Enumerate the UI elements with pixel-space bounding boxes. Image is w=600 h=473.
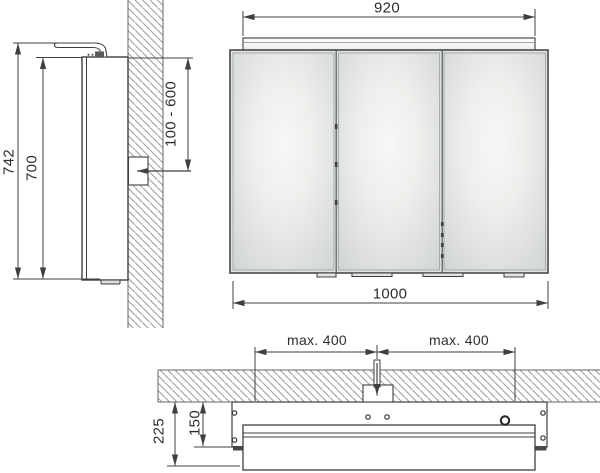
side-view-cabinet-body (82, 57, 128, 284)
mirror-door-1 (233, 53, 334, 270)
dim-label-side-body-height: 700 (25, 155, 40, 181)
front-view-light-strip (243, 38, 535, 50)
plan-view (158, 345, 600, 470)
dim-label-plan-body-depth: 150 (188, 410, 203, 436)
dim-label-side-total-height: 742 (2, 149, 17, 175)
plan-view-cabinet-body (243, 425, 535, 470)
dim-label-plan-total-depth: 225 (152, 418, 167, 444)
mirror-door-3 (444, 53, 546, 270)
front-view-cabinet (230, 50, 548, 277)
installation-drawing: 920 1000 742 700 100 - 600 max. 400 max.… (0, 0, 600, 473)
dim-label-plan-outlet-right: max. 400 (429, 333, 489, 347)
dim-label-front-light-width: 920 (374, 1, 400, 16)
dim-side-700 (36, 58, 82, 280)
dim-label-side-outlet-range: 100 - 600 (164, 81, 179, 147)
drawing-linework (0, 0, 600, 473)
front-view (230, 9, 548, 309)
side-view-light-cornice (55, 43, 108, 57)
dim-label-front-total-width: 1000 (373, 287, 408, 302)
dim-label-plan-outlet-left: max. 400 (287, 333, 347, 347)
mirror-door-2 (339, 53, 440, 270)
